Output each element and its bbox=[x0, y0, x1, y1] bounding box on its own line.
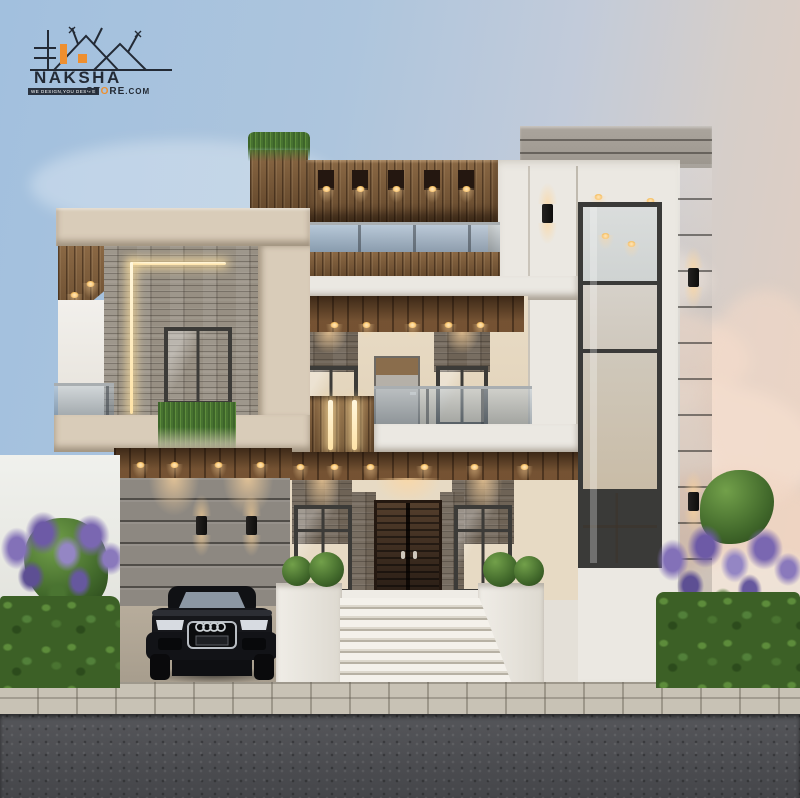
porch-downlight bbox=[420, 464, 429, 470]
logo-store-re: RE bbox=[109, 86, 125, 97]
wall-sconce bbox=[688, 268, 699, 287]
carport-downlight bbox=[170, 462, 179, 468]
soffit-downlight bbox=[70, 292, 79, 298]
balcony-downlight bbox=[362, 322, 371, 328]
car-wheel bbox=[254, 654, 274, 680]
pergola-light bbox=[322, 186, 331, 192]
planter-box bbox=[276, 583, 342, 683]
car-underbody bbox=[172, 660, 252, 676]
stone-uplight-glow bbox=[306, 332, 352, 368]
led-strip-vertical bbox=[352, 400, 357, 450]
sketch-chimney bbox=[60, 44, 67, 64]
downlight bbox=[594, 194, 603, 200]
reflected-downlight bbox=[601, 233, 610, 239]
porch-downlight bbox=[366, 464, 375, 470]
door-handle bbox=[401, 551, 405, 559]
leftwing-window bbox=[164, 327, 232, 405]
car-headlight bbox=[156, 620, 184, 630]
car-headlight bbox=[240, 620, 268, 630]
window-reflection bbox=[590, 207, 597, 563]
asphalt-road bbox=[0, 714, 800, 798]
logo-store-st: ST bbox=[86, 86, 101, 97]
pergola-light bbox=[462, 186, 471, 192]
logo-store-text: STORE.COM bbox=[86, 86, 150, 97]
render-stage: NAKSHA WE DESIGN,YOU DESIRE STORE.COM bbox=[0, 0, 800, 798]
naksha-store-logo: NAKSHA WE DESIGN,YOU DESIRE STORE.COM bbox=[20, 26, 190, 104]
tower-tall-window bbox=[578, 202, 662, 568]
tower-parapet-groove bbox=[520, 139, 712, 141]
soffit-downlight bbox=[86, 281, 95, 287]
tower-parapet-groove bbox=[520, 152, 712, 154]
topiary-bush bbox=[282, 556, 312, 586]
sketch-window bbox=[78, 54, 87, 63]
porch-downlight bbox=[296, 464, 305, 470]
stone-uplight-glow bbox=[440, 332, 484, 368]
car-plate bbox=[196, 636, 228, 645]
car-black-sedan bbox=[132, 580, 292, 686]
car-intake bbox=[158, 638, 182, 650]
hedge-left bbox=[0, 596, 120, 688]
porch-downlight bbox=[330, 464, 339, 470]
main-entrance-door bbox=[374, 500, 442, 604]
balcony-slab bbox=[374, 424, 578, 454]
car-intake bbox=[242, 638, 266, 650]
wall-sconce bbox=[196, 516, 207, 535]
wall-sconce bbox=[542, 204, 553, 223]
leftwing-fascia bbox=[56, 208, 310, 246]
wall-sconce bbox=[246, 516, 257, 535]
sketch-x-marks bbox=[69, 27, 141, 37]
carport-downlight bbox=[256, 462, 265, 468]
pergola-light bbox=[428, 186, 437, 192]
door-handle bbox=[413, 551, 417, 559]
reflected-downlight bbox=[627, 241, 636, 247]
balcony-downlight bbox=[408, 322, 417, 328]
hanging-planter-grass bbox=[158, 402, 236, 452]
carport-downlight bbox=[136, 462, 145, 468]
balcony-downlight bbox=[476, 322, 485, 328]
balcony-downlight bbox=[444, 322, 453, 328]
logo-house-sketch bbox=[26, 26, 176, 72]
logo-store-tld: .COM bbox=[125, 87, 150, 96]
topiary-bush bbox=[483, 552, 518, 587]
porch-downlight bbox=[470, 464, 479, 470]
car-windshield bbox=[178, 592, 246, 610]
led-strip-horizontal bbox=[130, 262, 226, 265]
topiary-bush bbox=[309, 552, 344, 587]
topiary-bush bbox=[514, 556, 544, 586]
car-hood-highlight bbox=[152, 610, 272, 616]
balcony-downlight bbox=[330, 322, 339, 328]
leftwing-return-wall bbox=[258, 246, 310, 418]
pergola-light bbox=[392, 186, 401, 192]
logo-brand-text: NAKSHA bbox=[34, 68, 122, 88]
hedge-right bbox=[656, 592, 800, 688]
roof-glass-railing bbox=[306, 222, 500, 255]
pergola-grass-top bbox=[248, 132, 310, 162]
sketch-lines bbox=[30, 28, 172, 70]
porch-downlight bbox=[520, 464, 529, 470]
pergola-light bbox=[356, 186, 365, 192]
carport-downlight bbox=[214, 462, 223, 468]
porch-landing bbox=[342, 590, 478, 598]
led-strip-vertical bbox=[328, 400, 333, 450]
led-strip-vertical bbox=[130, 262, 133, 414]
roof-wood-band bbox=[306, 252, 500, 278]
car-wheel bbox=[150, 654, 170, 680]
